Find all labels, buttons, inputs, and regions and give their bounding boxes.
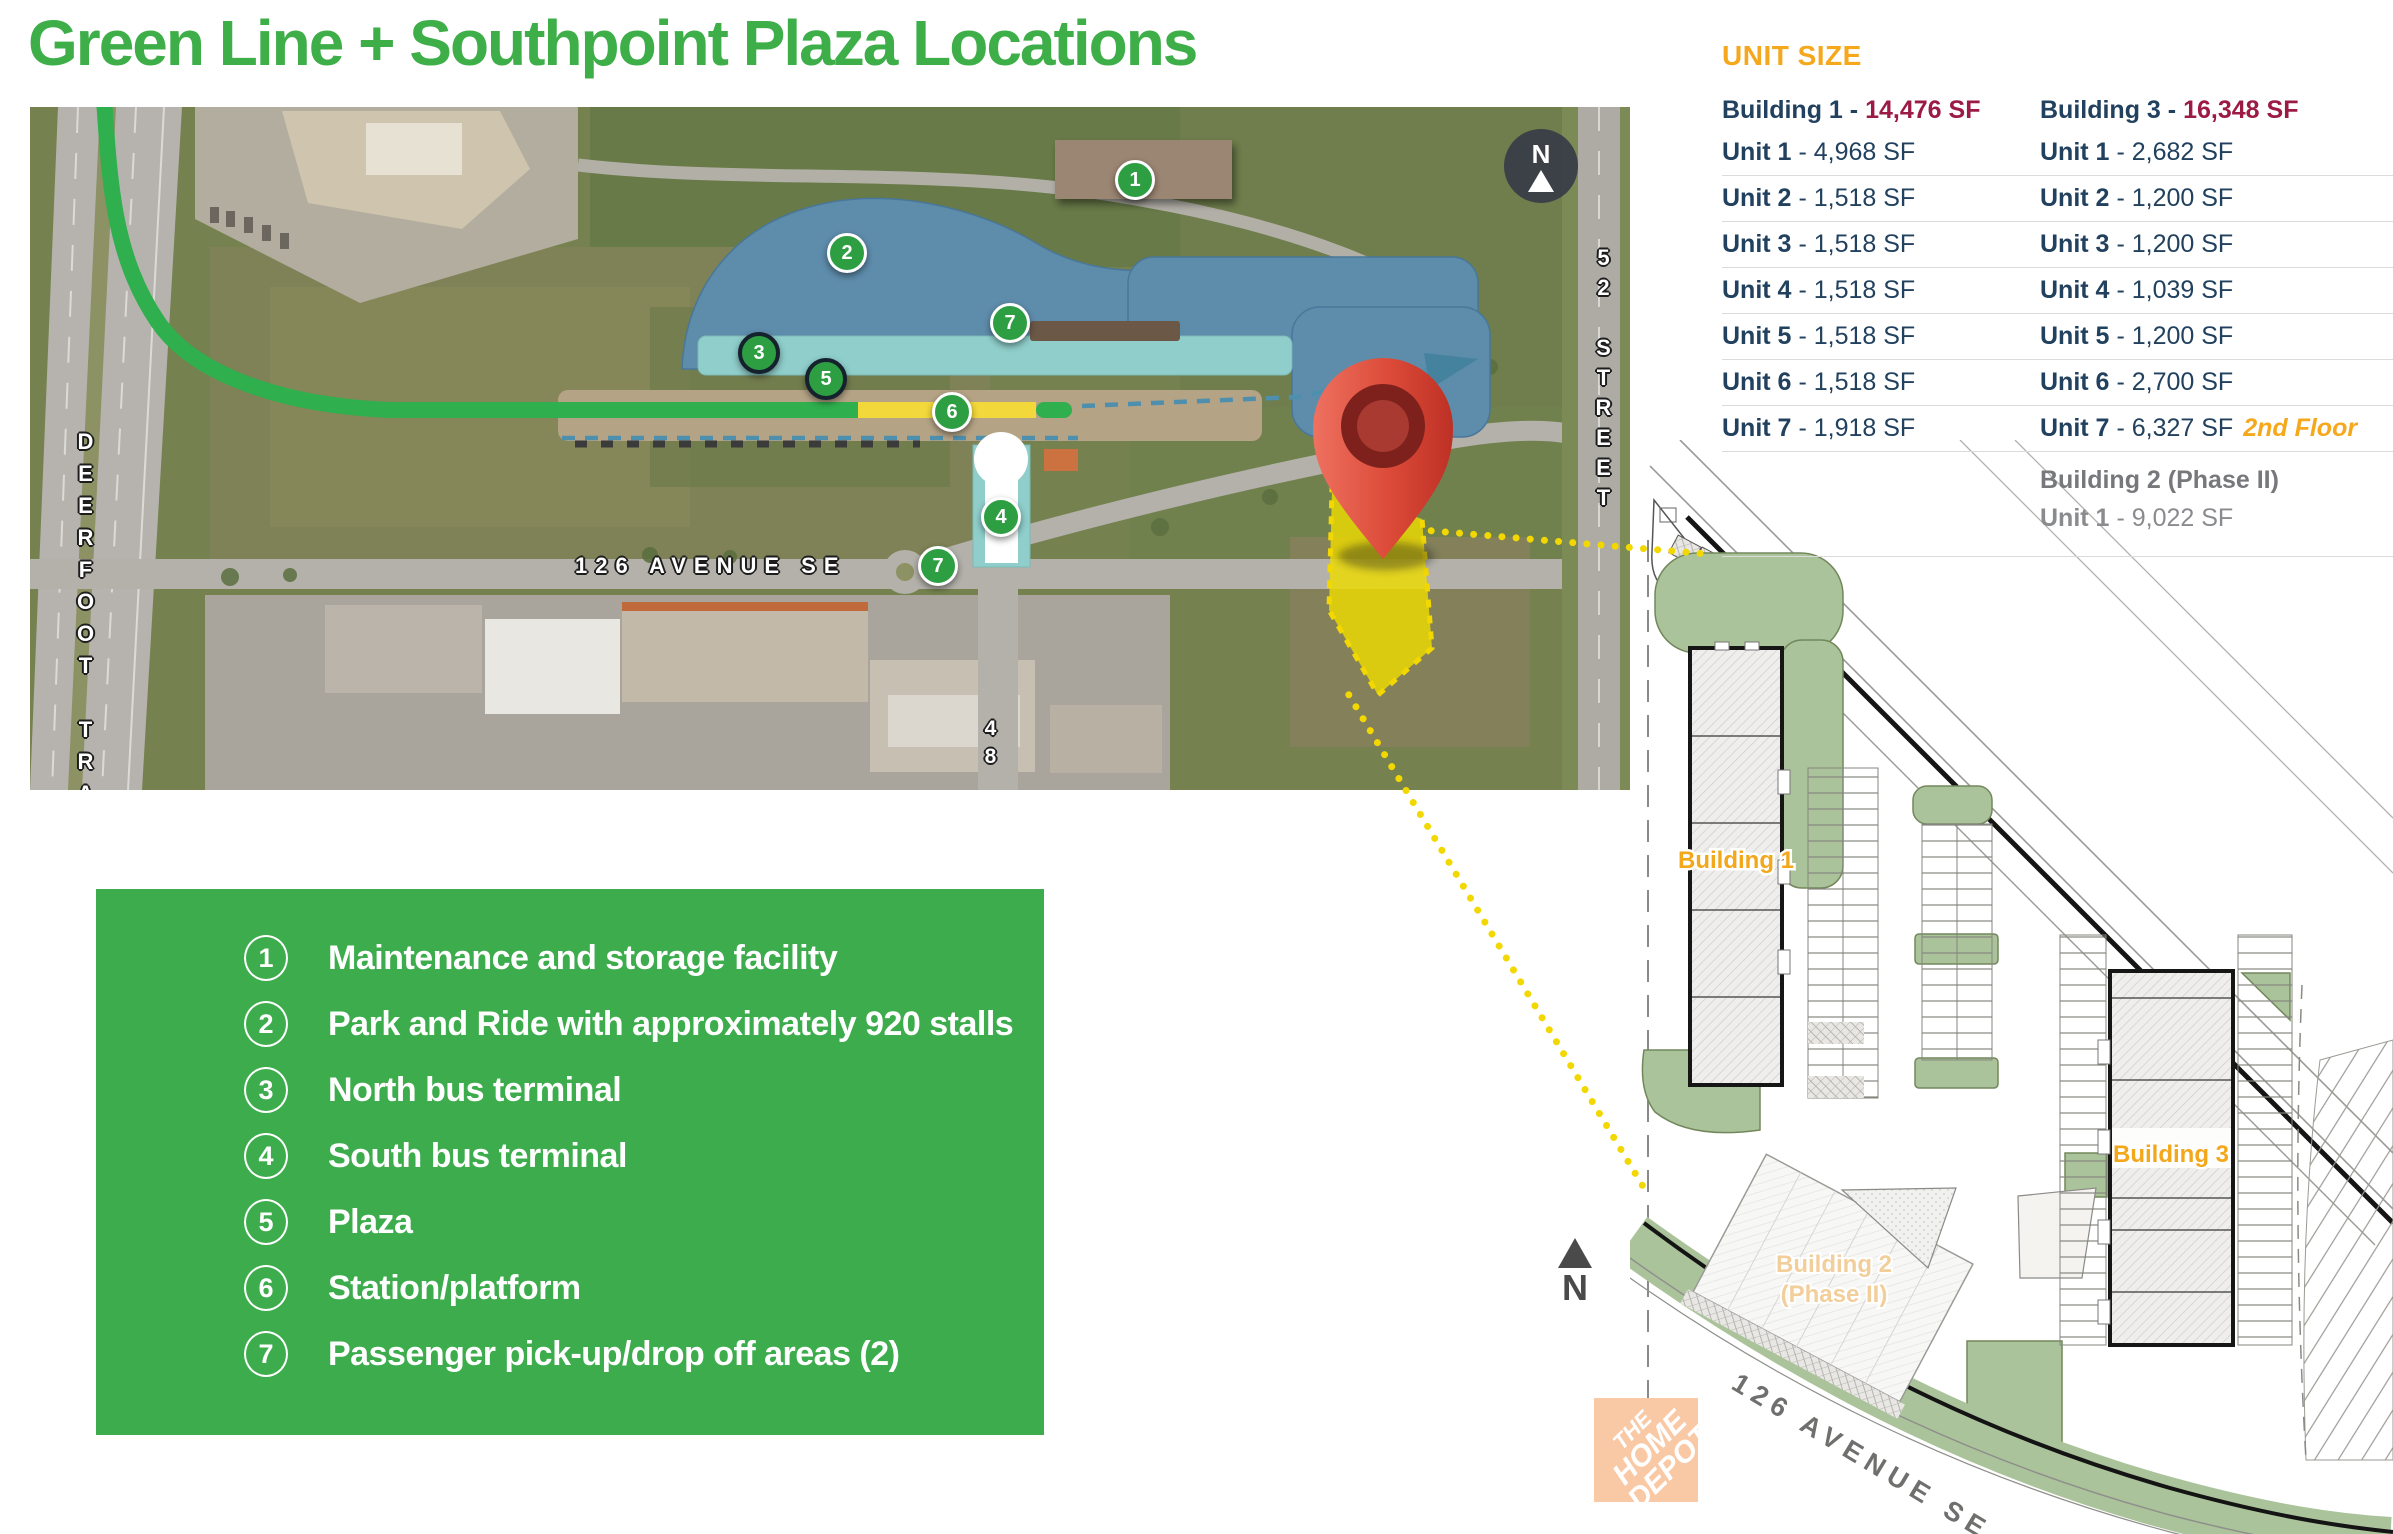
legend-label-7: Passenger pick-up/drop off areas (2) (328, 1335, 900, 1374)
b1-unit6-size: - 1,518 SF (1798, 368, 1915, 396)
legend-number-7: 7 (244, 1331, 288, 1377)
b1-unit3-name: Unit 3 (1722, 230, 1791, 258)
b3-unit6-size: - 2,700 SF (2116, 368, 2233, 396)
street-label-48-st: 48 ST (980, 717, 1001, 790)
aerial-map: DEERFOOT TRAIL 52 STREET 48 ST 126 AVENU… (30, 107, 1630, 790)
legend-label-2: Park and Ride with approximately 920 sta… (328, 1005, 1013, 1044)
b1-unit4-size: - 1,518 SF (1798, 276, 1915, 304)
unit-row-2: Unit 2- 1,518 SF Unit 2- 1,200 SF (1722, 176, 2393, 222)
unit-row-3: Unit 3- 1,518 SF Unit 3- 1,200 SF (1722, 222, 2393, 268)
aerial-map-graphic (30, 107, 1630, 790)
legend-label-3: North bus terminal (328, 1071, 621, 1110)
b3-unit4-name: Unit 4 (2040, 276, 2109, 304)
street-label-126-avenue: 126 AVENUE SE (575, 553, 847, 579)
building-3-name: Building 3 - (2040, 96, 2176, 124)
legend-label-4: South bus terminal (328, 1137, 627, 1176)
legend-item-5: 5 Plaza (96, 1189, 1044, 1255)
legend-number-5: 5 (244, 1199, 288, 1245)
b1-unit1-size: - 4,968 SF (1798, 138, 1915, 166)
building-2-unit-size: - 9,022 SF (2116, 504, 2233, 533)
home-depot-logo: THE HOME DEPOT (1594, 1398, 1698, 1502)
b3-unit7-name: Unit 7 (2040, 414, 2109, 442)
plan-north-label: N (1562, 1270, 1588, 1306)
plan-north-arrow: N (1552, 1238, 1598, 1306)
legend-number-4: 4 (244, 1133, 288, 1179)
legend-item-4: 4 South bus terminal (96, 1123, 1044, 1189)
flyer-page: Green Line + Southpoint Plaza Locations (0, 0, 2393, 1534)
map-marker-6: 6 (932, 392, 972, 432)
unit-size-heading: UNIT SIZE (1722, 40, 2393, 90)
b1-unit3-size: - 1,518 SF (1798, 230, 1915, 258)
b3-unit2-size: - 1,200 SF (2116, 184, 2233, 212)
building-1-name: Building 1 - (1722, 96, 1858, 124)
b3-unit5-name: Unit 5 (2040, 322, 2109, 350)
legend-item-7: 7 Passenger pick-up/drop off areas (2) (96, 1321, 1044, 1387)
legend-item-6: 6 Station/platform (96, 1255, 1044, 1321)
unit-size-table: UNIT SIZE Building 1 -14,476 SF Building… (1722, 40, 2393, 557)
plan-north-arrow-icon (1558, 1238, 1592, 1268)
building-2-unit-name: Unit 1 (2040, 504, 2109, 533)
b1-unit7-size: - 1,918 SF (1798, 414, 1915, 442)
map-marker-2: 2 (827, 233, 867, 273)
map-marker-5: 5 (805, 358, 847, 400)
pickup-strip (1030, 321, 1180, 341)
map-marker-4: 4 (981, 497, 1021, 537)
unit-row-6: Unit 6- 1,518 SF Unit 6- 2,700 SF (1722, 360, 2393, 406)
b3-unit7-size: - 6,327 SF (2116, 414, 2233, 442)
legend-number-6: 6 (244, 1265, 288, 1311)
site-plan-drawing: Building 1 Building 3 Building 2 (Phase … (1630, 440, 2393, 1534)
unit-row-7: Unit 7- 1,918 SF Unit 7- 6,327 SF2nd Flo… (1722, 406, 2393, 452)
map-marker-7b: 7 (918, 546, 958, 586)
legend-item-1: 1 Maintenance and storage facility (96, 925, 1044, 991)
street-label-deerfoot-trail: DEERFOOT TRAIL (74, 429, 96, 790)
building-1-total: 14,476 SF (1865, 96, 1980, 124)
b1-unit5-name: Unit 5 (1722, 322, 1791, 350)
unit-row-1: Unit 1- 4,968 SF Unit 1- 2,682 SF (1722, 130, 2393, 176)
b1-unit6-name: Unit 6 (1722, 368, 1791, 396)
legend-number-2: 2 (244, 1001, 288, 1047)
b3-unit1-size: - 2,682 SF (2116, 138, 2233, 166)
building-3-label: Building 3 (2113, 1141, 2229, 1168)
north-compass-icon: N (1504, 129, 1578, 203)
legend-label-5: Plaza (328, 1203, 412, 1242)
map-marker-1: 1 (1115, 160, 1155, 200)
building-totals-row: Building 1 -14,476 SF Building 3 -16,348… (1722, 90, 2393, 130)
unit-row-5: Unit 5- 1,518 SF Unit 5- 1,200 SF (1722, 314, 2393, 360)
legend-item-3: 3 North bus terminal (96, 1057, 1044, 1123)
building-2-label-line1: Building 2 (1776, 1251, 1892, 1278)
b3-unit7-note: 2nd Floor (2243, 414, 2357, 442)
b1-unit1-name: Unit 1 (1722, 138, 1791, 166)
b3-unit5-size: - 1,200 SF (2116, 322, 2233, 350)
b3-unit6-name: Unit 6 (2040, 368, 2109, 396)
b1-unit7-name: Unit 7 (1722, 414, 1791, 442)
north-arrow-icon (1528, 170, 1554, 192)
b3-unit1-name: Unit 1 (2040, 138, 2109, 166)
b1-unit2-name: Unit 2 (1722, 184, 1791, 212)
building-3-total: 16,348 SF (2183, 96, 2298, 124)
building-1-label: Building 1 (1678, 847, 1794, 874)
b3-unit4-size: - 1,039 SF (2116, 276, 2233, 304)
legend-item-2: 2 Park and Ride with approximately 920 s… (96, 991, 1044, 1057)
map-marker-3: 3 (738, 332, 780, 374)
legend-label-6: Station/platform (328, 1269, 581, 1308)
street-label-52-street: 52 STREET (1592, 245, 1614, 515)
building-2-title: Building 2 (Phase II) (2040, 466, 2393, 500)
map-marker-7a: 7 (990, 303, 1030, 343)
map-legend: 1 Maintenance and storage facility 2 Par… (96, 889, 1044, 1435)
north-bus-terminal-area (698, 336, 1292, 375)
building-2-label-line2: (Phase II) (1781, 1281, 1888, 1308)
b1-unit2-size: - 1,518 SF (1798, 184, 1915, 212)
building-2-block: Building 2 (Phase II) Unit 1 - 9,022 SF (1722, 466, 2393, 557)
page-title: Green Line + Southpoint Plaza Locations (28, 6, 1196, 80)
north-compass-label: N (1532, 141, 1551, 167)
unit-row-4: Unit 4- 1,518 SF Unit 4- 1,039 SF (1722, 268, 2393, 314)
b3-unit2-name: Unit 2 (2040, 184, 2109, 212)
b3-unit3-name: Unit 3 (2040, 230, 2109, 258)
legend-number-1: 1 (244, 935, 288, 981)
legend-label-1: Maintenance and storage facility (328, 939, 837, 978)
b1-unit4-name: Unit 4 (1722, 276, 1791, 304)
b1-unit5-size: - 1,518 SF (1798, 322, 1915, 350)
legend-number-3: 3 (244, 1067, 288, 1113)
b3-unit3-size: - 1,200 SF (2116, 230, 2233, 258)
